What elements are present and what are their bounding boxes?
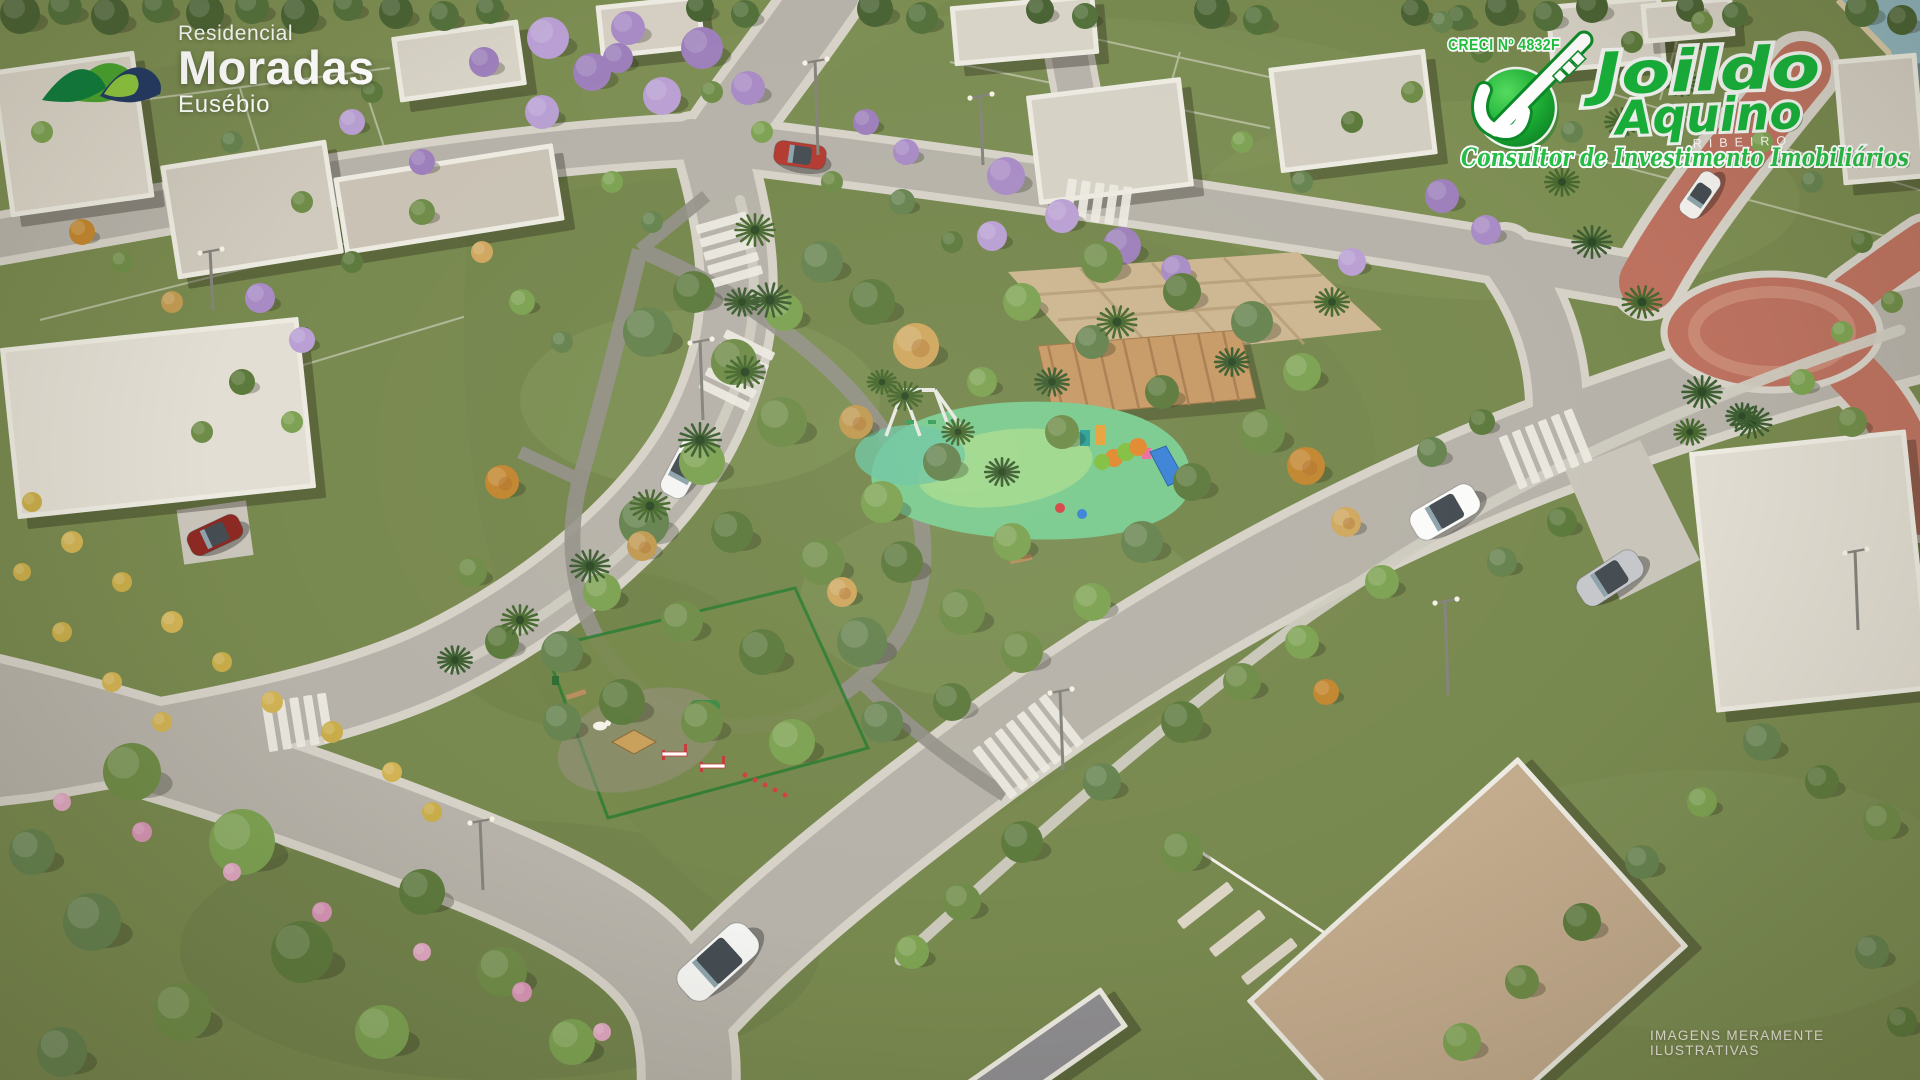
house: [1689, 428, 1920, 723]
check-key-icon: [1476, 40, 1586, 152]
tree: [1231, 131, 1253, 153]
tree: [1851, 231, 1873, 253]
tree: [223, 863, 241, 881]
dog: [593, 722, 607, 731]
palm-tree: [679, 423, 721, 457]
dev-logo-name: Moradas: [178, 46, 375, 89]
tree: [132, 822, 152, 842]
realtor-tagline: Consultor de Investimento Imobiliários: [1461, 143, 1909, 172]
tree: [641, 211, 663, 233]
joildo-aquino-logo: CRECI Nº 4832F Joildo Joildo Aquino Aqui…: [1418, 12, 1920, 192]
tree: [22, 492, 42, 512]
tree: [221, 131, 243, 153]
tree: [601, 171, 623, 193]
mountains-logo-icon: [40, 44, 172, 116]
palm-tree: [868, 370, 897, 393]
tree: [1341, 111, 1363, 133]
tree: [102, 672, 122, 692]
palm-tree: [942, 419, 973, 444]
tree: [1831, 321, 1853, 343]
dev-logo-pre: Residencial: [178, 22, 375, 46]
tree: [152, 712, 172, 732]
tree: [312, 902, 332, 922]
tree: [61, 531, 83, 553]
tree: [941, 231, 963, 253]
tree: [13, 563, 31, 581]
tree: [422, 802, 442, 822]
tree: [382, 762, 402, 782]
tree: [52, 622, 72, 642]
palm-tree: [571, 550, 610, 581]
tree: [291, 191, 313, 213]
tree: [1881, 291, 1903, 313]
palm-tree: [736, 214, 775, 246]
disclaimer-text: IMAGENS MERAMENTE ILUSTRATIVAS: [1650, 1028, 1920, 1058]
trash-bin: [552, 676, 559, 685]
palm-tree: [1726, 403, 1757, 428]
dev-logo-city: Eusébio: [178, 91, 375, 119]
tree: [161, 611, 183, 633]
tree: [413, 943, 431, 961]
palm-tree: [1215, 348, 1249, 375]
tree: [512, 982, 532, 1002]
tree: [471, 241, 493, 263]
creci-badge: CRECI Nº 4832F: [1448, 37, 1560, 54]
palm-tree: [726, 356, 765, 387]
tree: [751, 121, 773, 143]
house: [0, 316, 326, 530]
tree: [701, 81, 723, 103]
palm-tree: [985, 458, 1019, 485]
tree: [821, 171, 843, 193]
palm-tree: [1315, 288, 1349, 315]
tree: [261, 691, 283, 713]
tree: [1291, 171, 1313, 193]
palm-tree: [1683, 376, 1722, 407]
tree: [551, 331, 573, 353]
promo-render-page: Residencial Moradas Eusébio CRECI Nº 483…: [0, 0, 1920, 1080]
tree: [191, 421, 213, 443]
tree: [341, 251, 363, 273]
tree: [321, 721, 343, 743]
tree: [31, 121, 53, 143]
tree: [593, 1023, 611, 1041]
tree: [281, 411, 303, 433]
palm-tree: [502, 605, 538, 634]
tree: [112, 572, 132, 592]
tree: [111, 251, 133, 273]
tree: [212, 652, 232, 672]
palm-tree: [1573, 226, 1612, 258]
tree: [53, 793, 71, 811]
moradas-logo: Residencial Moradas Eusébio: [40, 22, 375, 119]
tree: [161, 291, 183, 313]
